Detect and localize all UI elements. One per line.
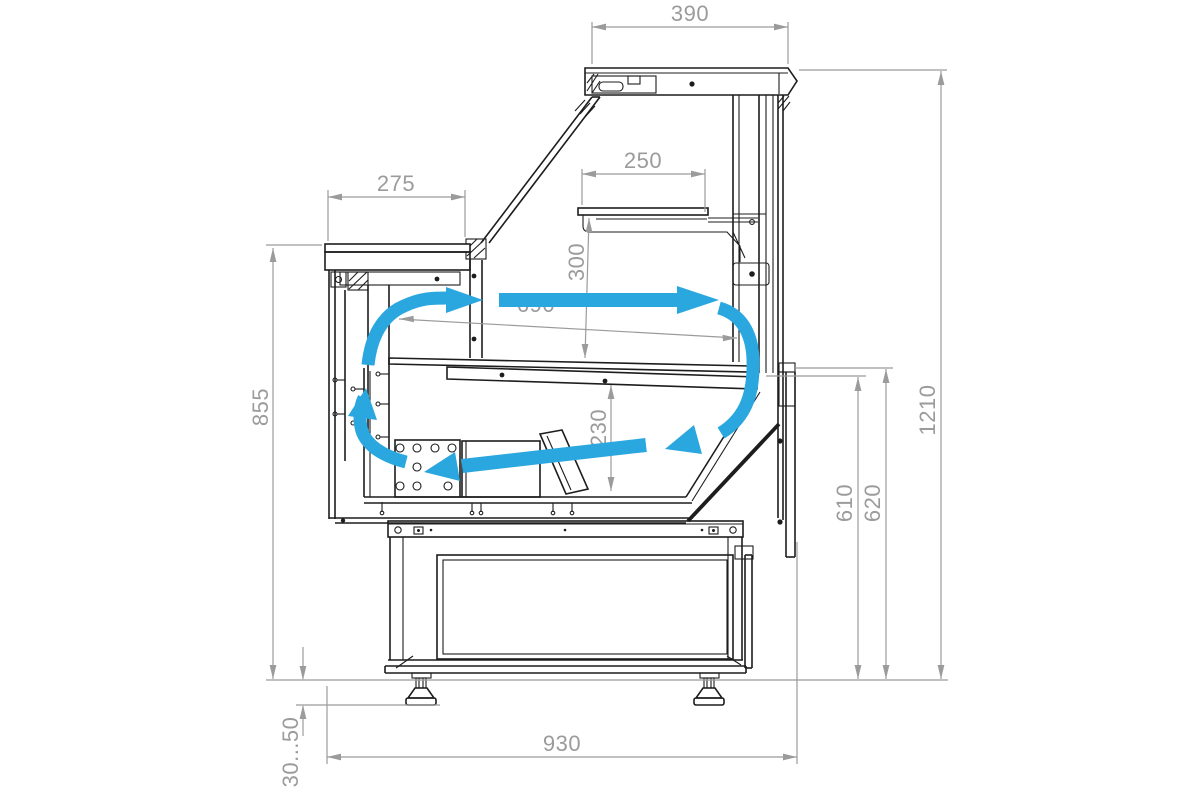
airflow-arrow-outlet [368, 287, 483, 365]
dim-well-height: 230 [586, 385, 614, 491]
airflow-arrow-return [424, 445, 646, 481]
dim-foot-adjust: 30...50 [278, 647, 306, 787]
adjustable-foot-left [406, 673, 436, 705]
dim-label-deck-rear-height: 610 [832, 484, 857, 522]
dim-label-foot-adjust: 30...50 [278, 717, 303, 788]
airflow-arrow-rear-down [665, 308, 753, 454]
dim-label-total-height: 1210 [915, 385, 940, 436]
dim-total-height: 1210 [915, 71, 944, 679]
technical-drawing: 390 275 250 300 690 [0, 0, 1200, 800]
dim-rear-edge-height: 620 [860, 369, 889, 679]
dim-label-well-height: 230 [586, 409, 611, 447]
dim-label-worktop-depth: 275 [377, 171, 415, 196]
well-pins [380, 502, 574, 515]
adjustable-foot-right [694, 673, 724, 705]
dim-label-base-depth: 930 [543, 731, 581, 756]
dimensions: 390 275 250 300 690 [248, 1, 948, 787]
dim-worktop-depth: 275 [328, 171, 465, 241]
dim-label-canopy-width: 390 [671, 1, 709, 26]
canopy [585, 68, 797, 95]
front-wall [329, 270, 335, 519]
dim-shelf-clearance: 300 [564, 218, 592, 358]
dim-label-front-height: 855 [248, 388, 273, 426]
dim-shelf-depth: 250 [582, 148, 705, 212]
display-case-structure [325, 68, 797, 705]
dim-label-shelf-clearance: 300 [564, 243, 589, 281]
back-wall-hatch [778, 96, 790, 111]
front-glass [466, 97, 600, 259]
dim-deck-rear-height: 610 [832, 377, 861, 679]
display-shelf [578, 208, 758, 262]
dim-front-height: 855 [248, 248, 276, 679]
dim-label-rear-edge-height: 620 [860, 484, 885, 522]
dim-canopy-width: 390 [592, 1, 788, 64]
dim-label-shelf-depth: 250 [624, 148, 662, 173]
display-deck [389, 358, 757, 389]
worktop-ledge [325, 244, 470, 290]
base-plinth [385, 521, 752, 673]
ledge-hatch [349, 272, 368, 290]
